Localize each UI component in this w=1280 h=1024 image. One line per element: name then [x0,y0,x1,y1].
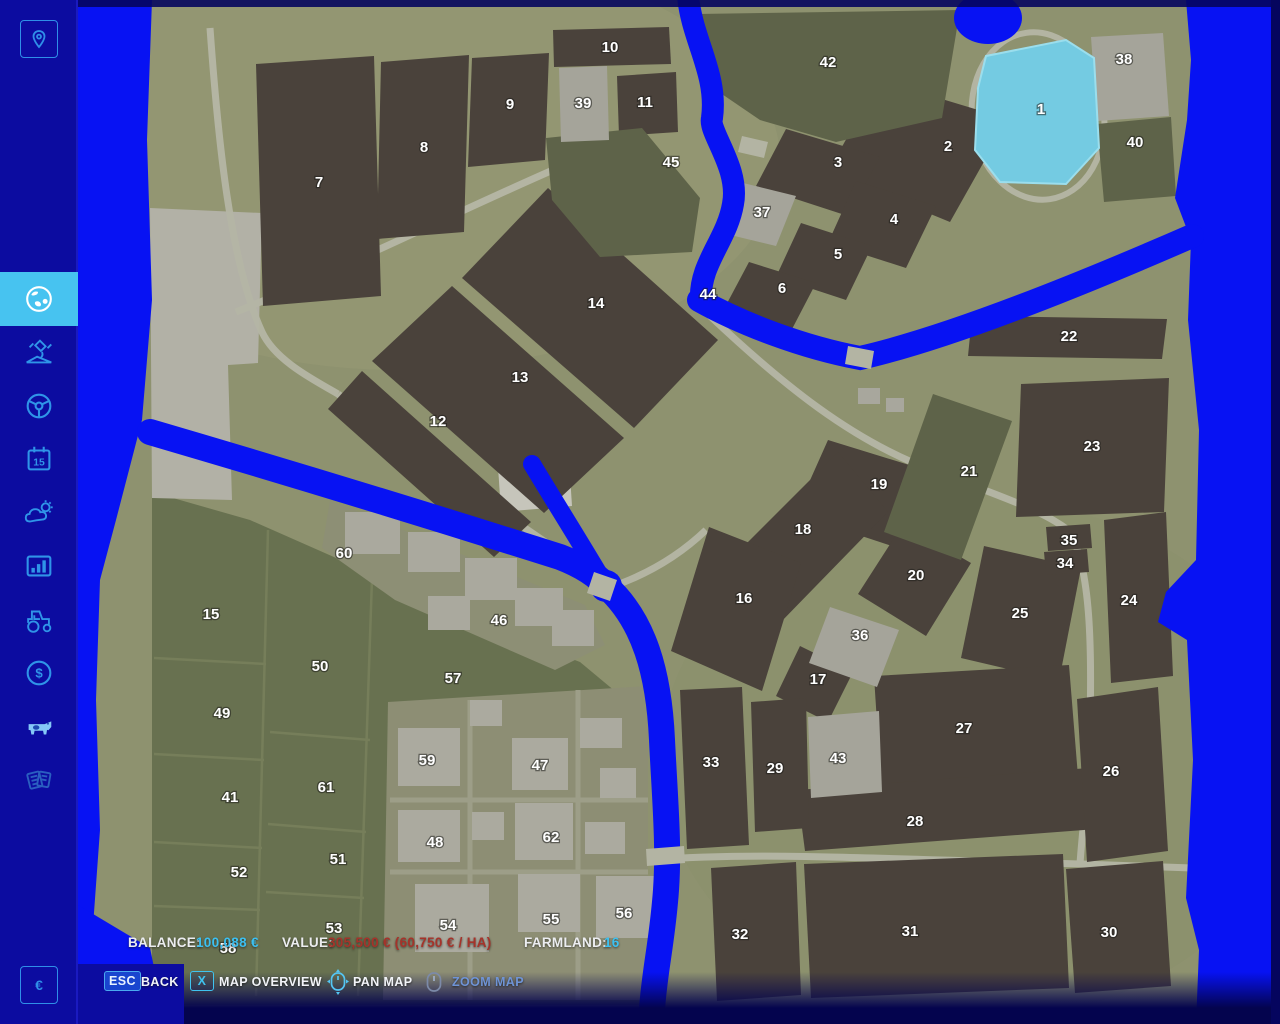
control-hints: ESC BACK X MAP OVERVIEW PAN MAP ZOOM MAP [0,971,1280,1001]
field-label-60[interactable]: 60 [336,545,353,562]
field-label-4[interactable]: 4 [890,211,899,228]
field-label-39[interactable]: 39 [575,95,592,112]
field-label-16[interactable]: 16 [736,590,753,607]
field-label-19[interactable]: 19 [871,476,888,493]
field-label-55[interactable]: 55 [543,911,560,928]
field-label-45[interactable]: 45 [663,154,680,171]
field-label-8[interactable]: 8 [420,139,428,156]
field-label-56[interactable]: 56 [616,905,633,922]
statusbar: BALANCE: 100,088 € VALUE: 305,500 € (60,… [0,935,1280,955]
field-label-2[interactable]: 2 [944,138,952,155]
steering-wheel-icon [22,389,56,423]
field-label-33[interactable]: 33 [703,754,720,771]
field-label-47[interactable]: 47 [532,757,549,774]
zoom-map-button[interactable]: ZOOM MAP [452,971,524,993]
field-label-27[interactable]: 27 [956,720,973,737]
field-label-15[interactable]: 15 [203,606,220,623]
field-label-22[interactable]: 22 [1061,328,1078,345]
farmland-label: FARMLAND: [524,935,607,950]
field-label-61[interactable]: 61 [318,779,335,796]
field-label-51[interactable]: 51 [330,851,347,868]
field-label-44[interactable]: 44 [700,286,717,303]
field-label-6[interactable]: 6 [778,280,786,297]
sidebar: 15 [0,0,78,1024]
sidebar-item-animals[interactable] [0,700,78,754]
field-label-9[interactable]: 9 [506,96,514,113]
field-label-57[interactable]: 57 [445,670,462,687]
field-label-48[interactable]: 48 [427,834,444,851]
field-label-12[interactable]: 12 [430,413,447,430]
calendar-icon: 15 [22,442,56,476]
field-label-34[interactable]: 34 [1057,555,1074,572]
satellite-icon [22,335,56,369]
sidebar-item-weather[interactable] [0,486,78,540]
field-label-62[interactable]: 62 [543,829,560,846]
balance-value: 100,088 € [196,935,259,950]
field-label-41[interactable]: 41 [222,789,239,806]
pan-map-button[interactable]: PAN MAP [353,971,413,993]
field-label-11[interactable]: 11 [637,94,653,111]
back-button[interactable]: BACK [141,971,179,993]
field-label-54[interactable]: 54 [440,917,457,934]
field-label-28[interactable]: 28 [907,813,924,830]
field-label-59[interactable]: 59 [419,752,436,769]
sidebar-item-contracts[interactable] [0,754,78,808]
balance-label: BALANCE: [128,935,201,950]
field-label-36[interactable]: 36 [852,627,869,644]
sidebar-item-finances[interactable]: $ [0,647,78,701]
field-label-38[interactable]: 38 [1116,51,1133,68]
field-label-40[interactable]: 40 [1127,134,1144,151]
weather-icon [22,496,56,530]
mouse-pan-icon [327,969,349,995]
field-label-26[interactable]: 26 [1103,763,1120,780]
esc-key[interactable]: ESC [104,971,141,991]
field-label-1[interactable]: 1 [1037,101,1045,118]
animals-icon [22,710,56,744]
map-overview-button[interactable]: MAP OVERVIEW [219,971,322,993]
field-label-13[interactable]: 13 [512,369,529,386]
map-overview-screen: 1234567891011121314151617181920212223242… [0,0,1280,1024]
sidebar-item-map-overview[interactable] [0,272,78,326]
euro-symbol: € [35,977,43,993]
map-marker-button[interactable] [20,20,58,58]
field-label-10[interactable]: 10 [602,39,619,56]
value-value: 305,500 € (60,750 € / HA) [328,935,492,950]
contracts-icon [22,763,56,797]
field-label-50[interactable]: 50 [312,658,329,675]
sidebar-menu: 15 [0,272,78,807]
x-key[interactable]: X [190,971,214,991]
sidebar-item-statistics[interactable] [0,540,78,594]
sidebar-item-vehicles[interactable] [0,379,78,433]
field-label-3[interactable]: 3 [834,154,842,171]
statistics-icon [22,549,56,583]
field-label-43[interactable]: 43 [830,750,847,767]
field-label-42[interactable]: 42 [820,54,837,71]
field-label-18[interactable]: 18 [795,521,812,538]
field-label-24[interactable]: 24 [1121,592,1138,609]
svg-text:$: $ [35,666,43,681]
svg-text:15: 15 [33,458,45,469]
field-label-25[interactable]: 25 [1012,605,1029,622]
field-label-14[interactable]: 14 [588,295,605,312]
field-label-23[interactable]: 23 [1084,438,1101,455]
mouse-zoom-icon [424,970,444,995]
currency-button[interactable]: € [20,966,58,1004]
field-label-35[interactable]: 35 [1061,532,1078,549]
field-label-46[interactable]: 46 [491,612,508,629]
sidebar-item-calendar[interactable]: 15 [0,433,78,487]
farmland-value: 16 [604,935,620,950]
field-label-21[interactable]: 21 [961,463,978,480]
finances-icon: $ [22,656,56,690]
tractor-icon [22,603,56,637]
map-marker-icon [28,28,50,50]
farmland-map[interactable]: 1234567891011121314151617181920212223242… [0,0,1280,1024]
field-label-20[interactable]: 20 [908,567,925,584]
field-label-17[interactable]: 17 [810,671,827,688]
field-label-49[interactable]: 49 [214,705,231,722]
sidebar-item-satellite[interactable] [0,326,78,380]
field-label-37[interactable]: 37 [754,204,771,221]
field-label-29[interactable]: 29 [767,760,784,777]
field-label-5[interactable]: 5 [834,246,842,263]
field-label-7[interactable]: 7 [315,174,323,191]
value-label: VALUE: [282,935,333,950]
field-label-52[interactable]: 52 [231,864,248,881]
globe-icon [22,282,56,316]
sidebar-item-garage[interactable] [0,593,78,647]
